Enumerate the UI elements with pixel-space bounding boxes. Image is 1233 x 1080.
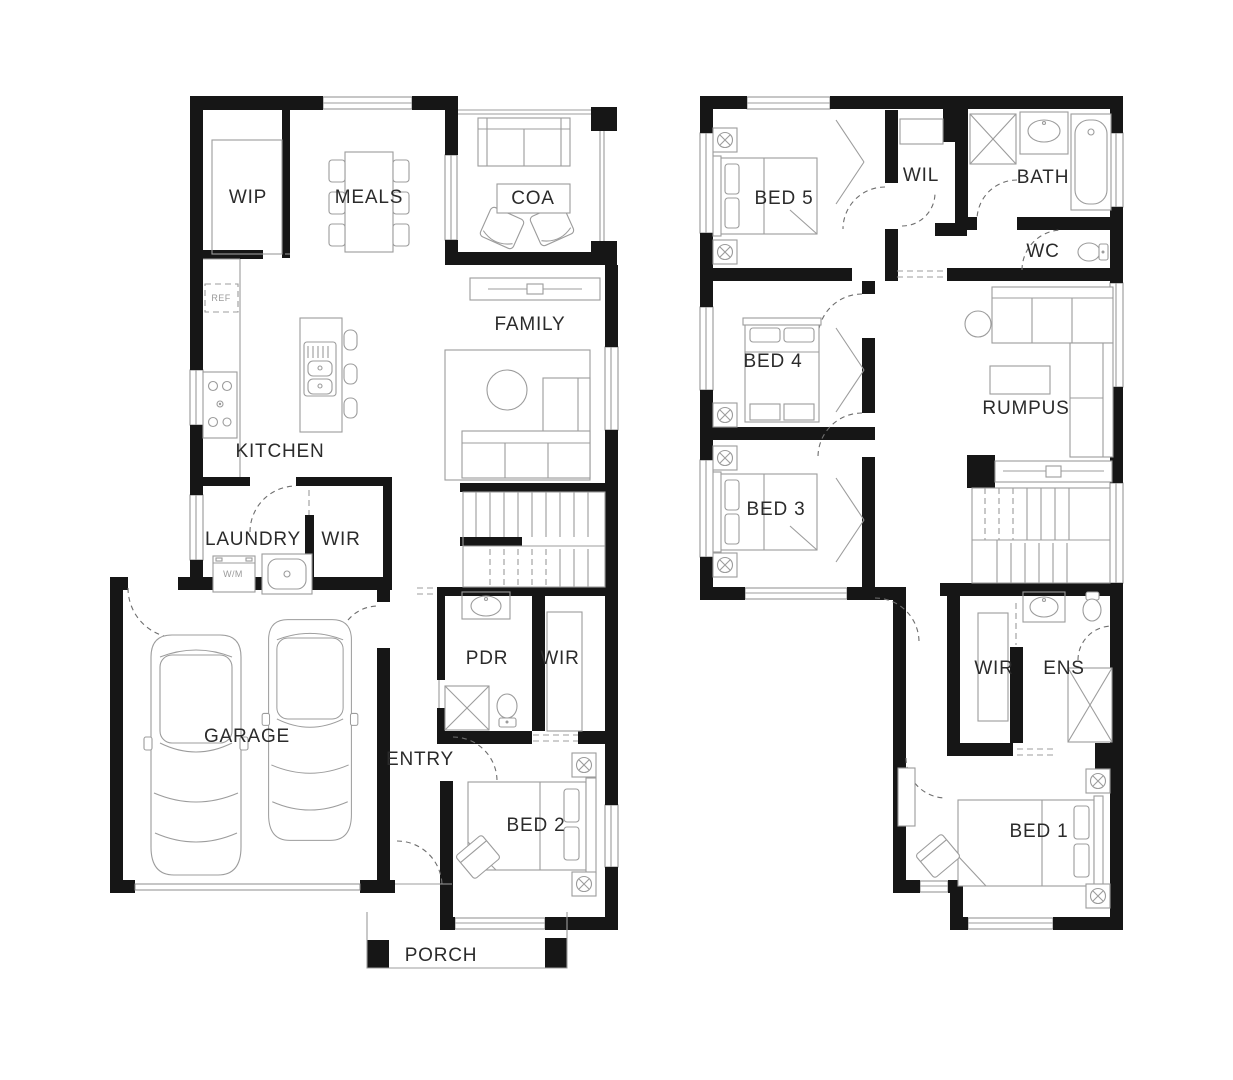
room-label-bath: BATH	[1017, 167, 1069, 188]
outdoor-sofa	[478, 118, 570, 166]
room-label-pdr: PDR	[466, 648, 509, 669]
rumpus-chair	[965, 311, 991, 337]
room-label-wir: WIR	[321, 529, 360, 550]
tv-unit	[470, 278, 600, 300]
room-label-family: FAMILY	[495, 314, 566, 335]
room-label-wir2: WIR	[540, 648, 579, 669]
wir-shelf	[547, 612, 582, 731]
bed-1	[958, 796, 1103, 890]
bed1-desk	[898, 768, 915, 826]
bedside-symbol	[713, 553, 737, 577]
bed1-chair	[915, 834, 960, 879]
cooktop	[203, 372, 237, 438]
bath-shower	[970, 114, 1016, 164]
room-label-coa: COA	[511, 188, 555, 209]
kitchen-island	[300, 318, 357, 432]
rumpus-table	[990, 366, 1050, 394]
room-label-ens: ENS	[1043, 658, 1084, 679]
bedside-symbol	[1086, 769, 1110, 793]
bedside-symbol	[1086, 884, 1110, 908]
pdr-basin	[462, 592, 510, 619]
wil-shelf	[900, 119, 943, 144]
ground-floor-plan: WIP MEALS COA FAMILY KITCHEN LAUNDRY WIR…	[110, 96, 618, 968]
room-label-bed1: BED 1	[1010, 821, 1069, 842]
car	[144, 635, 248, 875]
laundry-tub	[262, 554, 312, 594]
room-label-entry: ENTRY	[386, 749, 454, 770]
room-label-meals: MEALS	[335, 187, 403, 208]
room-label-laundry: LAUNDRY	[205, 529, 301, 550]
room-label-bed4: BED 4	[744, 351, 803, 372]
room-label-kitchen: KITCHEN	[236, 441, 325, 462]
fridge-label: REF	[211, 293, 230, 303]
bedside-symbol	[713, 240, 737, 264]
bedside-symbol	[572, 872, 596, 896]
garage-door	[135, 884, 360, 890]
ens-basin	[1023, 592, 1065, 622]
upper-floor-plan: BED 5 WIL BATH WC BED 4 RUMPUS BED 3 WIR…	[700, 96, 1123, 930]
stair-shelf	[995, 461, 1112, 482]
family-sofa	[445, 350, 590, 480]
ens-shower	[1068, 668, 1112, 742]
bedside-symbol	[713, 403, 737, 427]
bath-basin	[1020, 112, 1068, 154]
bedside-symbol	[713, 446, 737, 470]
room-label-wip: WIP	[229, 187, 267, 208]
upper-labels: BED 5 WIL BATH WC BED 4 RUMPUS BED 3 WIR…	[744, 165, 1085, 842]
floorplan-canvas: WIP MEALS COA FAMILY KITCHEN LAUNDRY WIR…	[0, 0, 1233, 1080]
room-label-rumpus: RUMPUS	[982, 398, 1069, 419]
room-label-bed2: BED 2	[507, 815, 566, 836]
room-label-porch: PORCH	[405, 945, 478, 966]
upper-staircase	[972, 488, 1110, 583]
kitchen-bench	[203, 259, 240, 477]
room-label-wir-upper: WIR	[974, 658, 1013, 679]
room-label-wil: WIL	[903, 165, 939, 186]
bathtub	[1071, 114, 1111, 210]
room-label-bed5: BED 5	[755, 188, 814, 209]
pdr-toilet	[497, 694, 517, 727]
ens-toilet	[1083, 592, 1101, 621]
room-label-bed3: BED 3	[747, 499, 806, 520]
linen-cupboard	[445, 686, 489, 730]
washer-label: W/M	[223, 569, 243, 579]
room-label-garage: GARAGE	[204, 726, 290, 747]
wc-toilet	[1078, 243, 1108, 261]
room-label-wc: WC	[1026, 241, 1059, 262]
bedside-symbol	[572, 753, 596, 777]
bedside-symbol	[713, 128, 737, 152]
floorplan-drawing: WIP MEALS COA FAMILY KITCHEN LAUNDRY WIR…	[0, 0, 1233, 1080]
robe-doors	[836, 120, 864, 562]
